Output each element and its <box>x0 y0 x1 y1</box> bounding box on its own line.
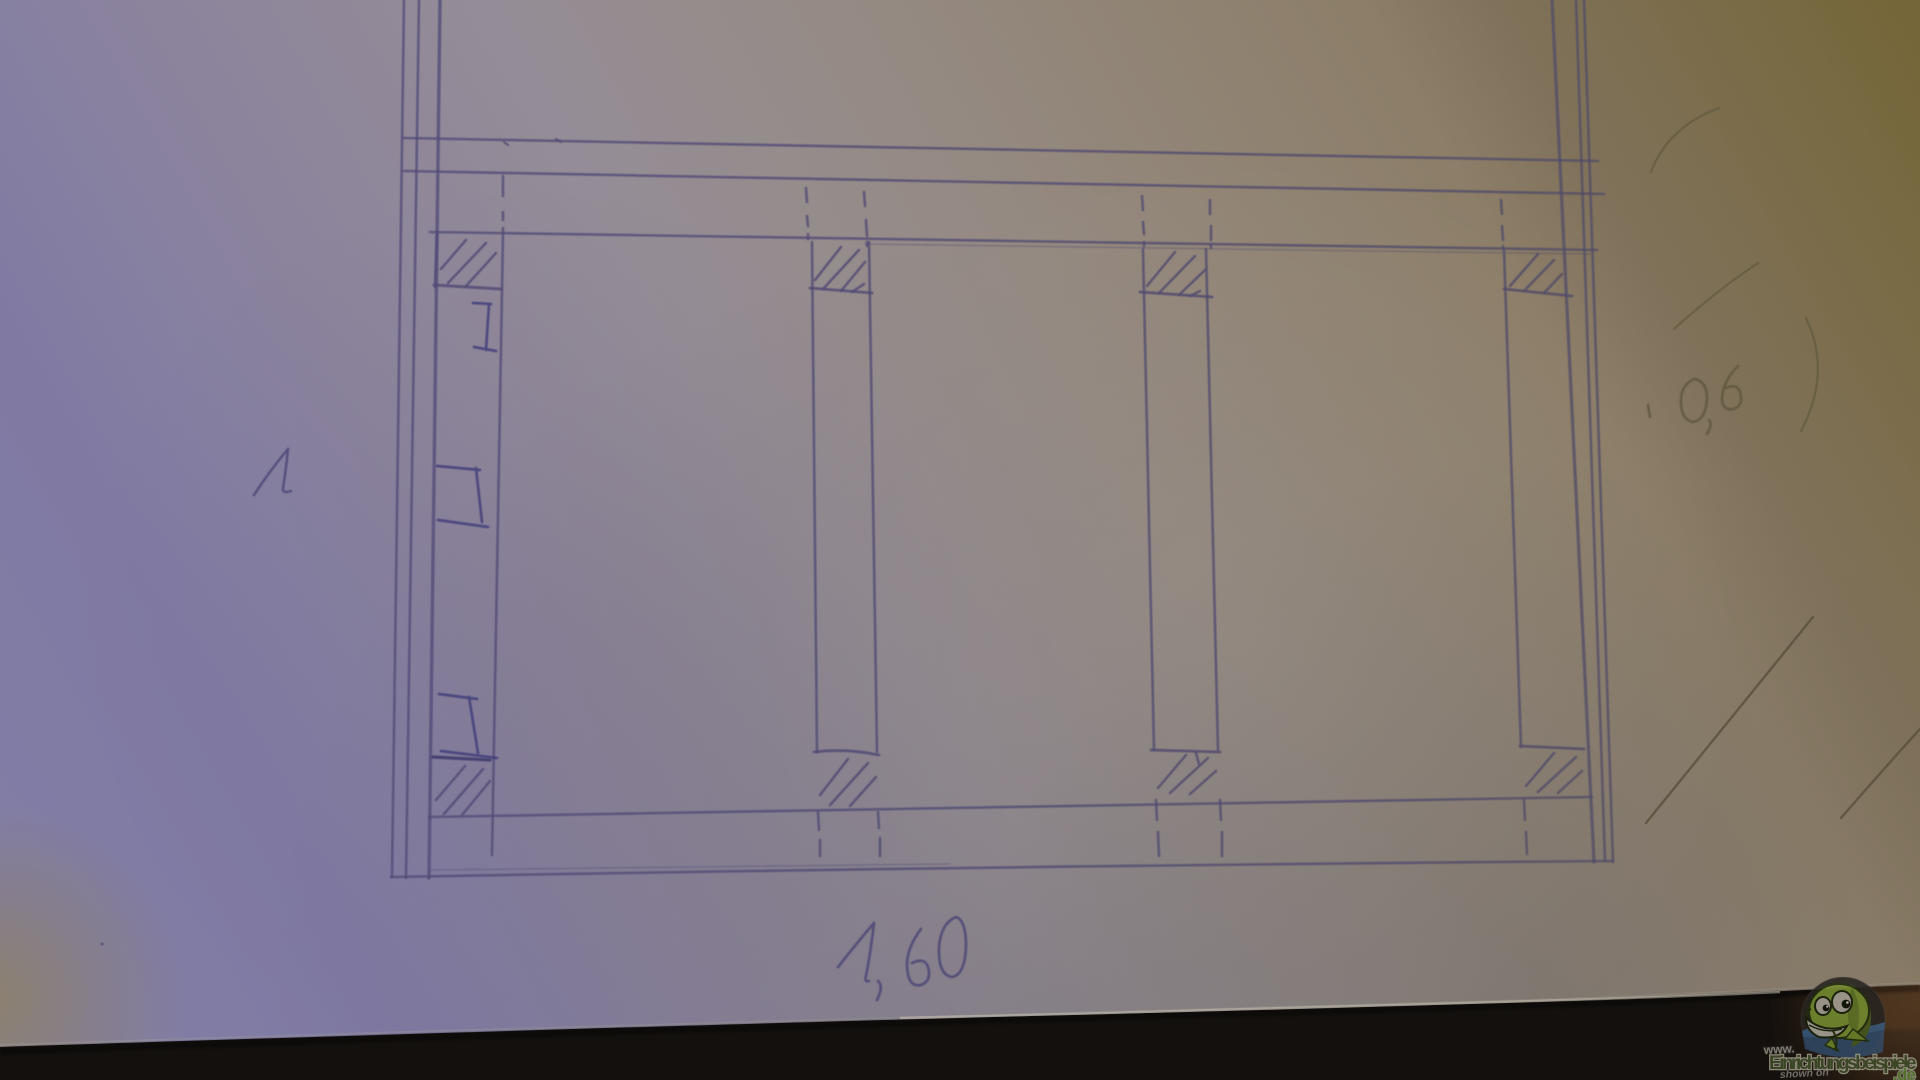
svg-text:shown on: shown on <box>1780 1066 1830 1080</box>
svg-text:.de: .de <box>1893 1066 1916 1080</box>
